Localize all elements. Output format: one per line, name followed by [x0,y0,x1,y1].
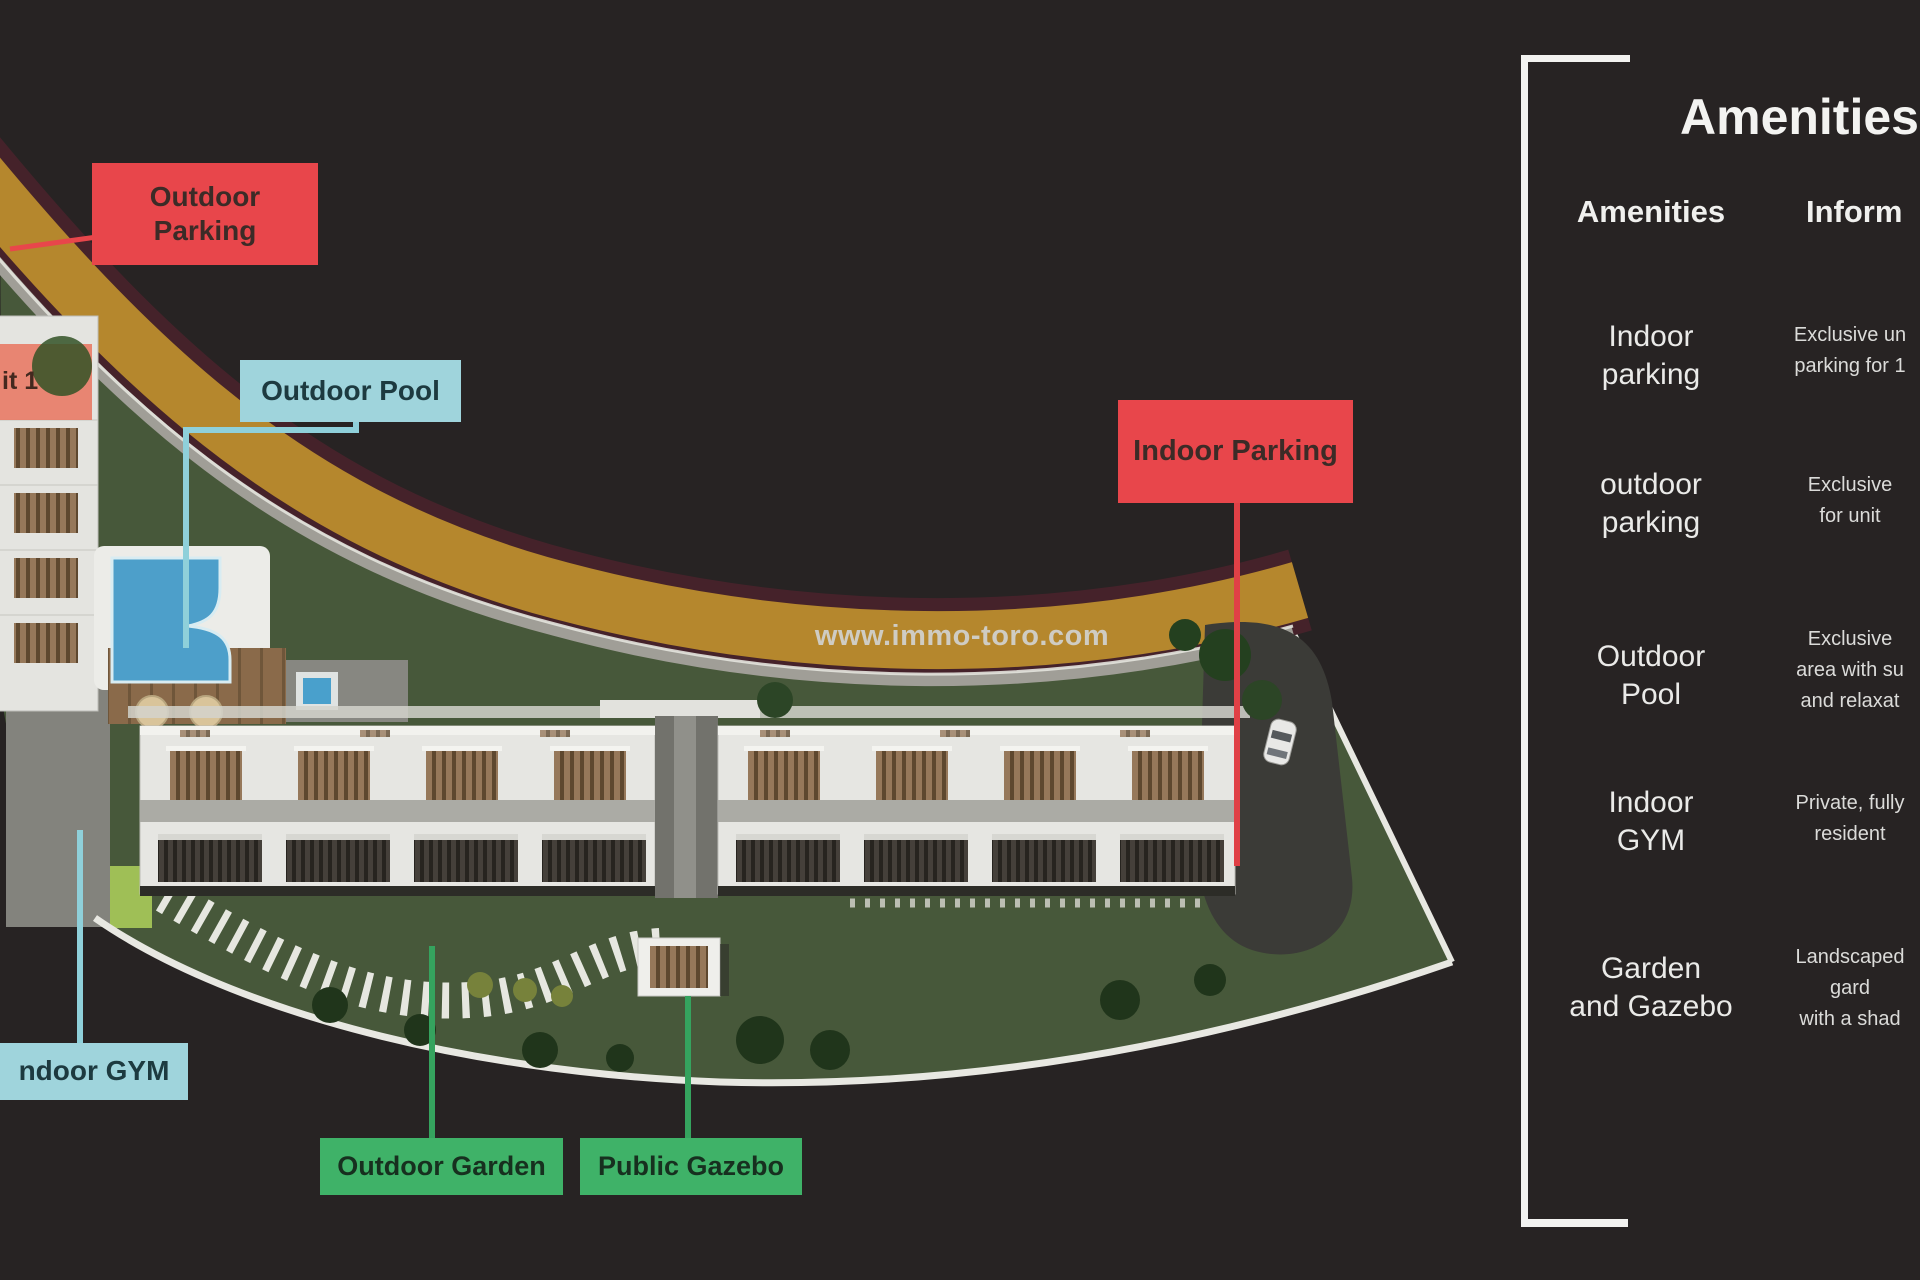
amenity-name-garden-gazebo: Garden and Gazebo [1545,950,1757,1026]
amenity-info-indoor-gym: Private, fully resident [1750,788,1920,850]
amenity-name-indoor-parking: Indoor parking [1545,318,1757,394]
column-header-information: Inform [1806,194,1902,230]
amenity-info-outdoor-parking: Exclusive for unit [1750,470,1920,532]
column-header-amenities: Amenities [1545,194,1757,230]
residence-buildings [128,700,1250,898]
amenity-name-outdoor-parking: outdoor parking [1545,466,1757,542]
panel-title: Amenities [1680,88,1919,146]
public-gazebo-label: Public Gazebo [580,1138,802,1195]
watermark: www.immo-toro.com [812,620,1112,653]
amenity-name-outdoor-pool: Outdoor Pool [1545,638,1757,714]
amenity-name-indoor-gym: Indoor GYM [1545,784,1757,860]
indoor-gym-label: ndoor GYM [0,1043,188,1100]
outdoor-garden-label: Outdoor Garden [320,1138,563,1195]
amenity-info-outdoor-pool: Exclusive area with su and relaxat [1750,624,1920,717]
outdoor-parking-label: Outdoor Parking [92,163,318,265]
gazebo [638,938,729,996]
amenity-info-indoor-parking: Exclusive un parking for 1 [1750,320,1920,382]
panel-bracket-top [1521,55,1630,62]
panel-bracket-line [1521,55,1528,1227]
outdoor-pool-label: Outdoor Pool [240,360,461,422]
site-plan-figure: Outdoor Parking Outdoor Pool Indoor Park… [0,0,1920,1280]
unit-1-tag: it 1 [2,364,62,398]
amenity-info-garden-gazebo: Landscaped gard with a shad [1750,942,1920,1035]
panel-bracket-bottom [1521,1219,1628,1227]
indoor-parking-label: Indoor Parking [1118,400,1353,503]
